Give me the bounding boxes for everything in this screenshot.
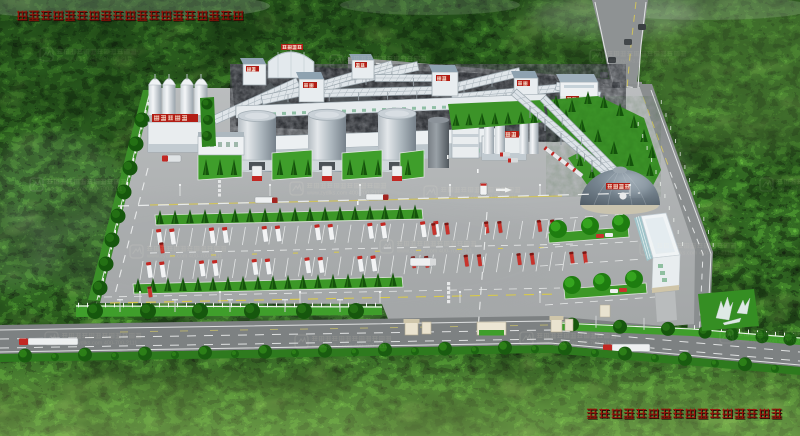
svg-text:www.zydlks.com 400-700-2111: www.zydlks.com 400-700-2111	[536, 341, 612, 347]
svg-text:www.zydlks.com 400-700-2111: www.zydlks.com 400-700-2111	[440, 195, 516, 201]
svg-text:www.zydlks.com 400-700-2111: www.zydlks.com 400-700-2111	[736, 339, 800, 345]
svg-text:www.zydlks.com 400-700-2111: www.zydlks.com 400-700-2111	[656, 251, 732, 257]
svg-text:www.zydlks.com 400-700-2111: www.zydlks.com 400-700-2111	[146, 254, 222, 260]
svg-text:www.zydlks.com 400-700-2111: www.zydlks.com 400-700-2111	[396, 249, 472, 255]
svg-text:www.zydlks.com 400-700-2111: www.zydlks.com 400-700-2111	[56, 57, 132, 63]
svg-text:www.zydlks.com 400-700-2111: www.zydlks.com 400-700-2111	[346, 64, 422, 70]
svg-text:www.zydlks.com 400-700-2111: www.zydlks.com 400-700-2111	[61, 341, 137, 347]
svg-text:www.zydlks.com 400-700-2111: www.zydlks.com 400-700-2111	[311, 344, 387, 350]
svg-text:www.zydlks.com 400-700-2111: www.zydlks.com 400-700-2111	[46, 187, 122, 193]
svg-text:www.zydlks.com 400-700-2111: www.zydlks.com 400-700-2111	[776, 187, 800, 193]
svg-text:www.zydlks.com 400-700-2111: www.zydlks.com 400-700-2111	[306, 191, 382, 197]
svg-text:www.zydlks.com 400-700-2111: www.zydlks.com 400-700-2111	[606, 59, 682, 65]
